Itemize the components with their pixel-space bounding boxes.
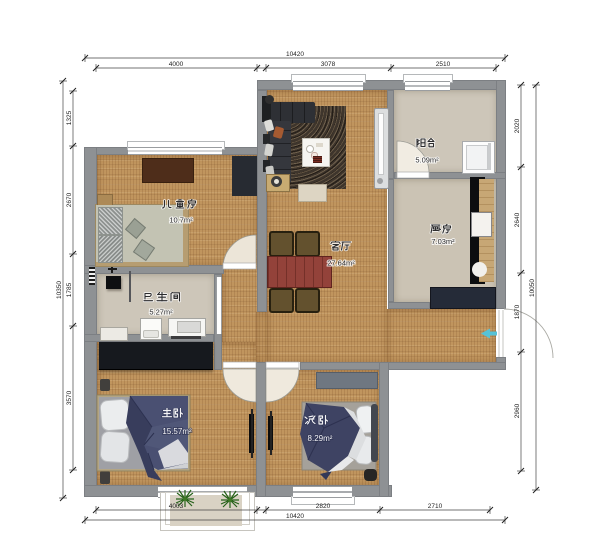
svg-text:3570: 3570 xyxy=(66,390,73,405)
svg-text:4003: 4003 xyxy=(169,503,184,510)
svg-text:27.64m²: 27.64m² xyxy=(327,259,355,268)
svg-text:2820: 2820 xyxy=(316,503,331,510)
svg-text:10050: 10050 xyxy=(529,279,536,297)
svg-text:2640: 2640 xyxy=(514,212,521,227)
svg-text:3078: 3078 xyxy=(321,61,336,68)
svg-text:2670: 2670 xyxy=(66,192,73,207)
svg-text:2020: 2020 xyxy=(514,118,521,133)
svg-text:2710: 2710 xyxy=(428,503,443,510)
svg-text:2510: 2510 xyxy=(436,61,451,68)
svg-text:2960: 2960 xyxy=(514,403,521,418)
svg-text:5.09m²: 5.09m² xyxy=(415,156,439,165)
svg-text:7.03m²: 7.03m² xyxy=(431,237,455,246)
svg-text:15.57m²: 15.57m² xyxy=(162,427,192,436)
svg-text:4000: 4000 xyxy=(169,61,184,68)
svg-text:10.7m²: 10.7m² xyxy=(169,216,193,225)
svg-text:1870: 1870 xyxy=(514,304,521,319)
svg-text:10350: 10350 xyxy=(56,281,63,299)
svg-text:10420: 10420 xyxy=(286,513,304,520)
svg-text:10420: 10420 xyxy=(286,51,304,58)
svg-text:8.29m²: 8.29m² xyxy=(308,434,333,443)
svg-text:1325: 1325 xyxy=(66,110,73,125)
svg-text:1785: 1785 xyxy=(66,282,73,297)
svg-text:5.27m²: 5.27m² xyxy=(149,308,173,317)
